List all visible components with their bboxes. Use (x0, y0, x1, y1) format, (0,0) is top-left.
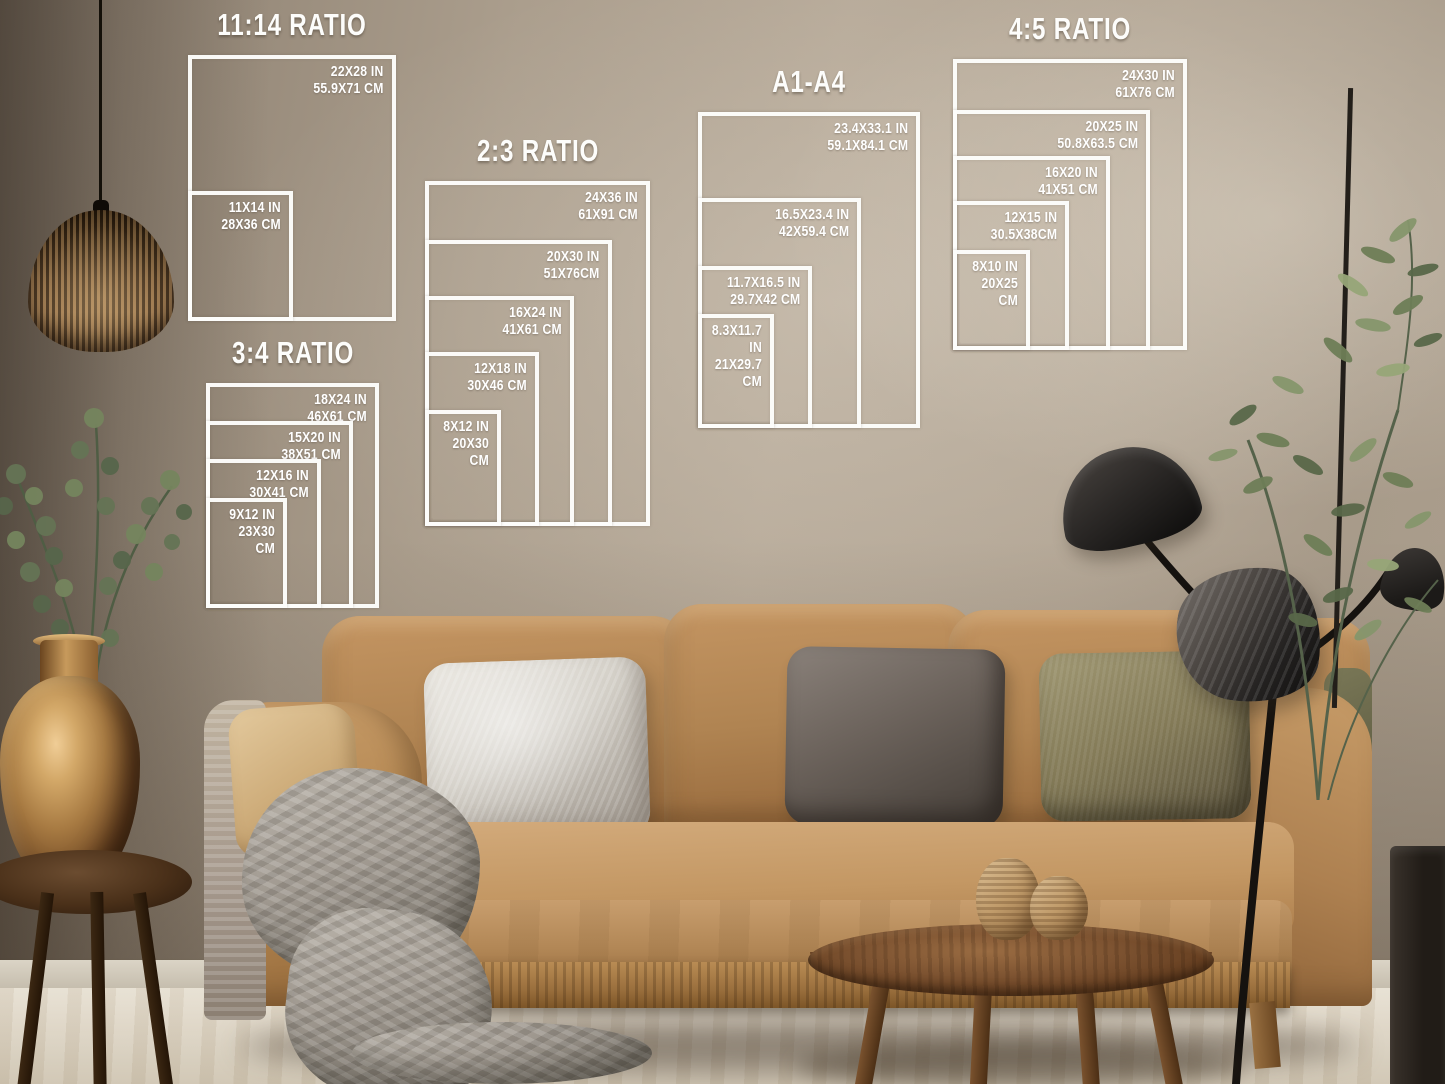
size-label: 8X12 IN20X30 CM (439, 419, 489, 470)
size-cm: 20X30 CM (439, 436, 489, 470)
size-group-title: 4:5 RATIO (992, 11, 1149, 47)
size-label: 20X25 IN50.8X63.5 CM (1057, 119, 1138, 153)
size-cm: 23X30 CM (220, 524, 275, 558)
size-group-title: 2:3 RATIO (459, 133, 616, 169)
size-label: 8X10 IN20X25 CM (967, 259, 1018, 310)
size-inches: 12X16 IN (249, 468, 309, 485)
living-room-scene: 11:14 RATIO22X28 IN55.9X71 CM11X14 IN28X… (0, 0, 1445, 1084)
size-group-title-text: A1-A4 (772, 64, 846, 100)
size-inches: 11X14 IN (221, 200, 281, 217)
size-inches: 8X12 IN (439, 419, 489, 436)
size-inches: 22X28 IN (314, 64, 384, 81)
size-group-title-text: 11:14 RATIO (217, 7, 366, 43)
size-inches: 8.3X11.7 IN (712, 323, 762, 357)
size-group-title: 3:4 RATIO (214, 335, 371, 371)
size-inches: 16X24 IN (502, 305, 562, 322)
size-group-title: 11:14 RATIO (196, 7, 387, 43)
size-inches: 16.5X23.4 IN (775, 207, 849, 224)
size-label: 20X30 IN51X76CM (544, 249, 600, 283)
size-label: 24X36 IN61X91 CM (578, 190, 638, 224)
size-label: 11X14 IN28X36 CM (221, 200, 281, 234)
size-cm: 30X46 CM (467, 378, 527, 395)
size-guide-a-series: A1-A423.4X33.1 IN59.1X84.1 CM16.5X23.4 I… (698, 112, 920, 428)
size-group-title: A1-A4 (762, 64, 857, 100)
size-inches: 9X12 IN (220, 507, 275, 524)
size-guide-ratio-4-5: 4:5 RATIO24X30 IN61X76 CM20X25 IN50.8X63… (953, 59, 1187, 350)
size-cm: 42X59.4 CM (775, 224, 849, 241)
size-inches: 23.4X33.1 IN (827, 121, 908, 138)
size-rect: 8.3X11.7 IN21X29.7 CM (698, 314, 774, 428)
size-label: 16X20 IN41X51 CM (1038, 165, 1098, 199)
size-label: 22X28 IN55.9X71 CM (314, 64, 384, 98)
size-guide-ratio-3-4: 3:4 RATIO18X24 IN46X61 CM15X20 IN38X51 C… (206, 383, 379, 608)
size-inches: 18X24 IN (307, 392, 367, 409)
size-cm: 61X91 CM (578, 207, 638, 224)
size-cm: 21X29.7 CM (712, 357, 762, 391)
size-inches: 11.7X16.5 IN (727, 275, 800, 292)
size-cm: 51X76CM (544, 266, 600, 283)
size-inches: 16X20 IN (1038, 165, 1098, 182)
size-group-title-text: 4:5 RATIO (1009, 11, 1131, 47)
size-rect: 8X12 IN20X30 CM (425, 410, 501, 526)
size-cm: 50.8X63.5 CM (1057, 136, 1138, 153)
size-group-title-text: 3:4 RATIO (231, 335, 353, 371)
size-cm: 29.7X42 CM (727, 292, 800, 309)
size-group-title-text: 2:3 RATIO (476, 133, 598, 169)
size-cm: 30.5X38CM (990, 227, 1057, 244)
size-guide-ratio-11-14: 11:14 RATIO22X28 IN55.9X71 CM11X14 IN28X… (188, 55, 396, 321)
size-inches: 24X36 IN (578, 190, 638, 207)
size-cm: 28X36 CM (221, 217, 281, 234)
poster-size-guides: 11:14 RATIO22X28 IN55.9X71 CM11X14 IN28X… (0, 0, 1445, 1084)
size-inches: 20X30 IN (544, 249, 600, 266)
size-label: 8.3X11.7 IN21X29.7 CM (712, 323, 762, 391)
size-cm: 59.1X84.1 CM (827, 138, 908, 155)
size-inches: 15X20 IN (281, 430, 341, 447)
size-inches: 12X15 IN (990, 210, 1057, 227)
size-inches: 24X30 IN (1115, 68, 1175, 85)
size-rect: 9X12 IN23X30 CM (206, 498, 287, 608)
size-label: 9X12 IN23X30 CM (220, 507, 275, 558)
size-cm: 20X25 CM (967, 276, 1018, 310)
size-rect: 8X10 IN20X25 CM (953, 250, 1030, 350)
size-inches: 20X25 IN (1057, 119, 1138, 136)
size-inches: 8X10 IN (967, 259, 1018, 276)
size-label: 12X18 IN30X46 CM (467, 361, 527, 395)
size-label: 24X30 IN61X76 CM (1115, 68, 1175, 102)
size-cm: 55.9X71 CM (314, 81, 384, 98)
size-label: 16X24 IN41X61 CM (502, 305, 562, 339)
size-cm: 61X76 CM (1115, 85, 1175, 102)
size-label: 12X15 IN30.5X38CM (990, 210, 1057, 244)
size-cm: 41X61 CM (502, 322, 562, 339)
size-guide-ratio-2-3: 2:3 RATIO24X36 IN61X91 CM20X30 IN51X76CM… (425, 181, 650, 526)
size-label: 23.4X33.1 IN59.1X84.1 CM (827, 121, 908, 155)
size-label: 16.5X23.4 IN42X59.4 CM (775, 207, 849, 241)
size-label: 11.7X16.5 IN29.7X42 CM (727, 275, 800, 309)
size-rect: 11X14 IN28X36 CM (188, 191, 293, 321)
size-cm: 41X51 CM (1038, 182, 1098, 199)
size-inches: 12X18 IN (467, 361, 527, 378)
